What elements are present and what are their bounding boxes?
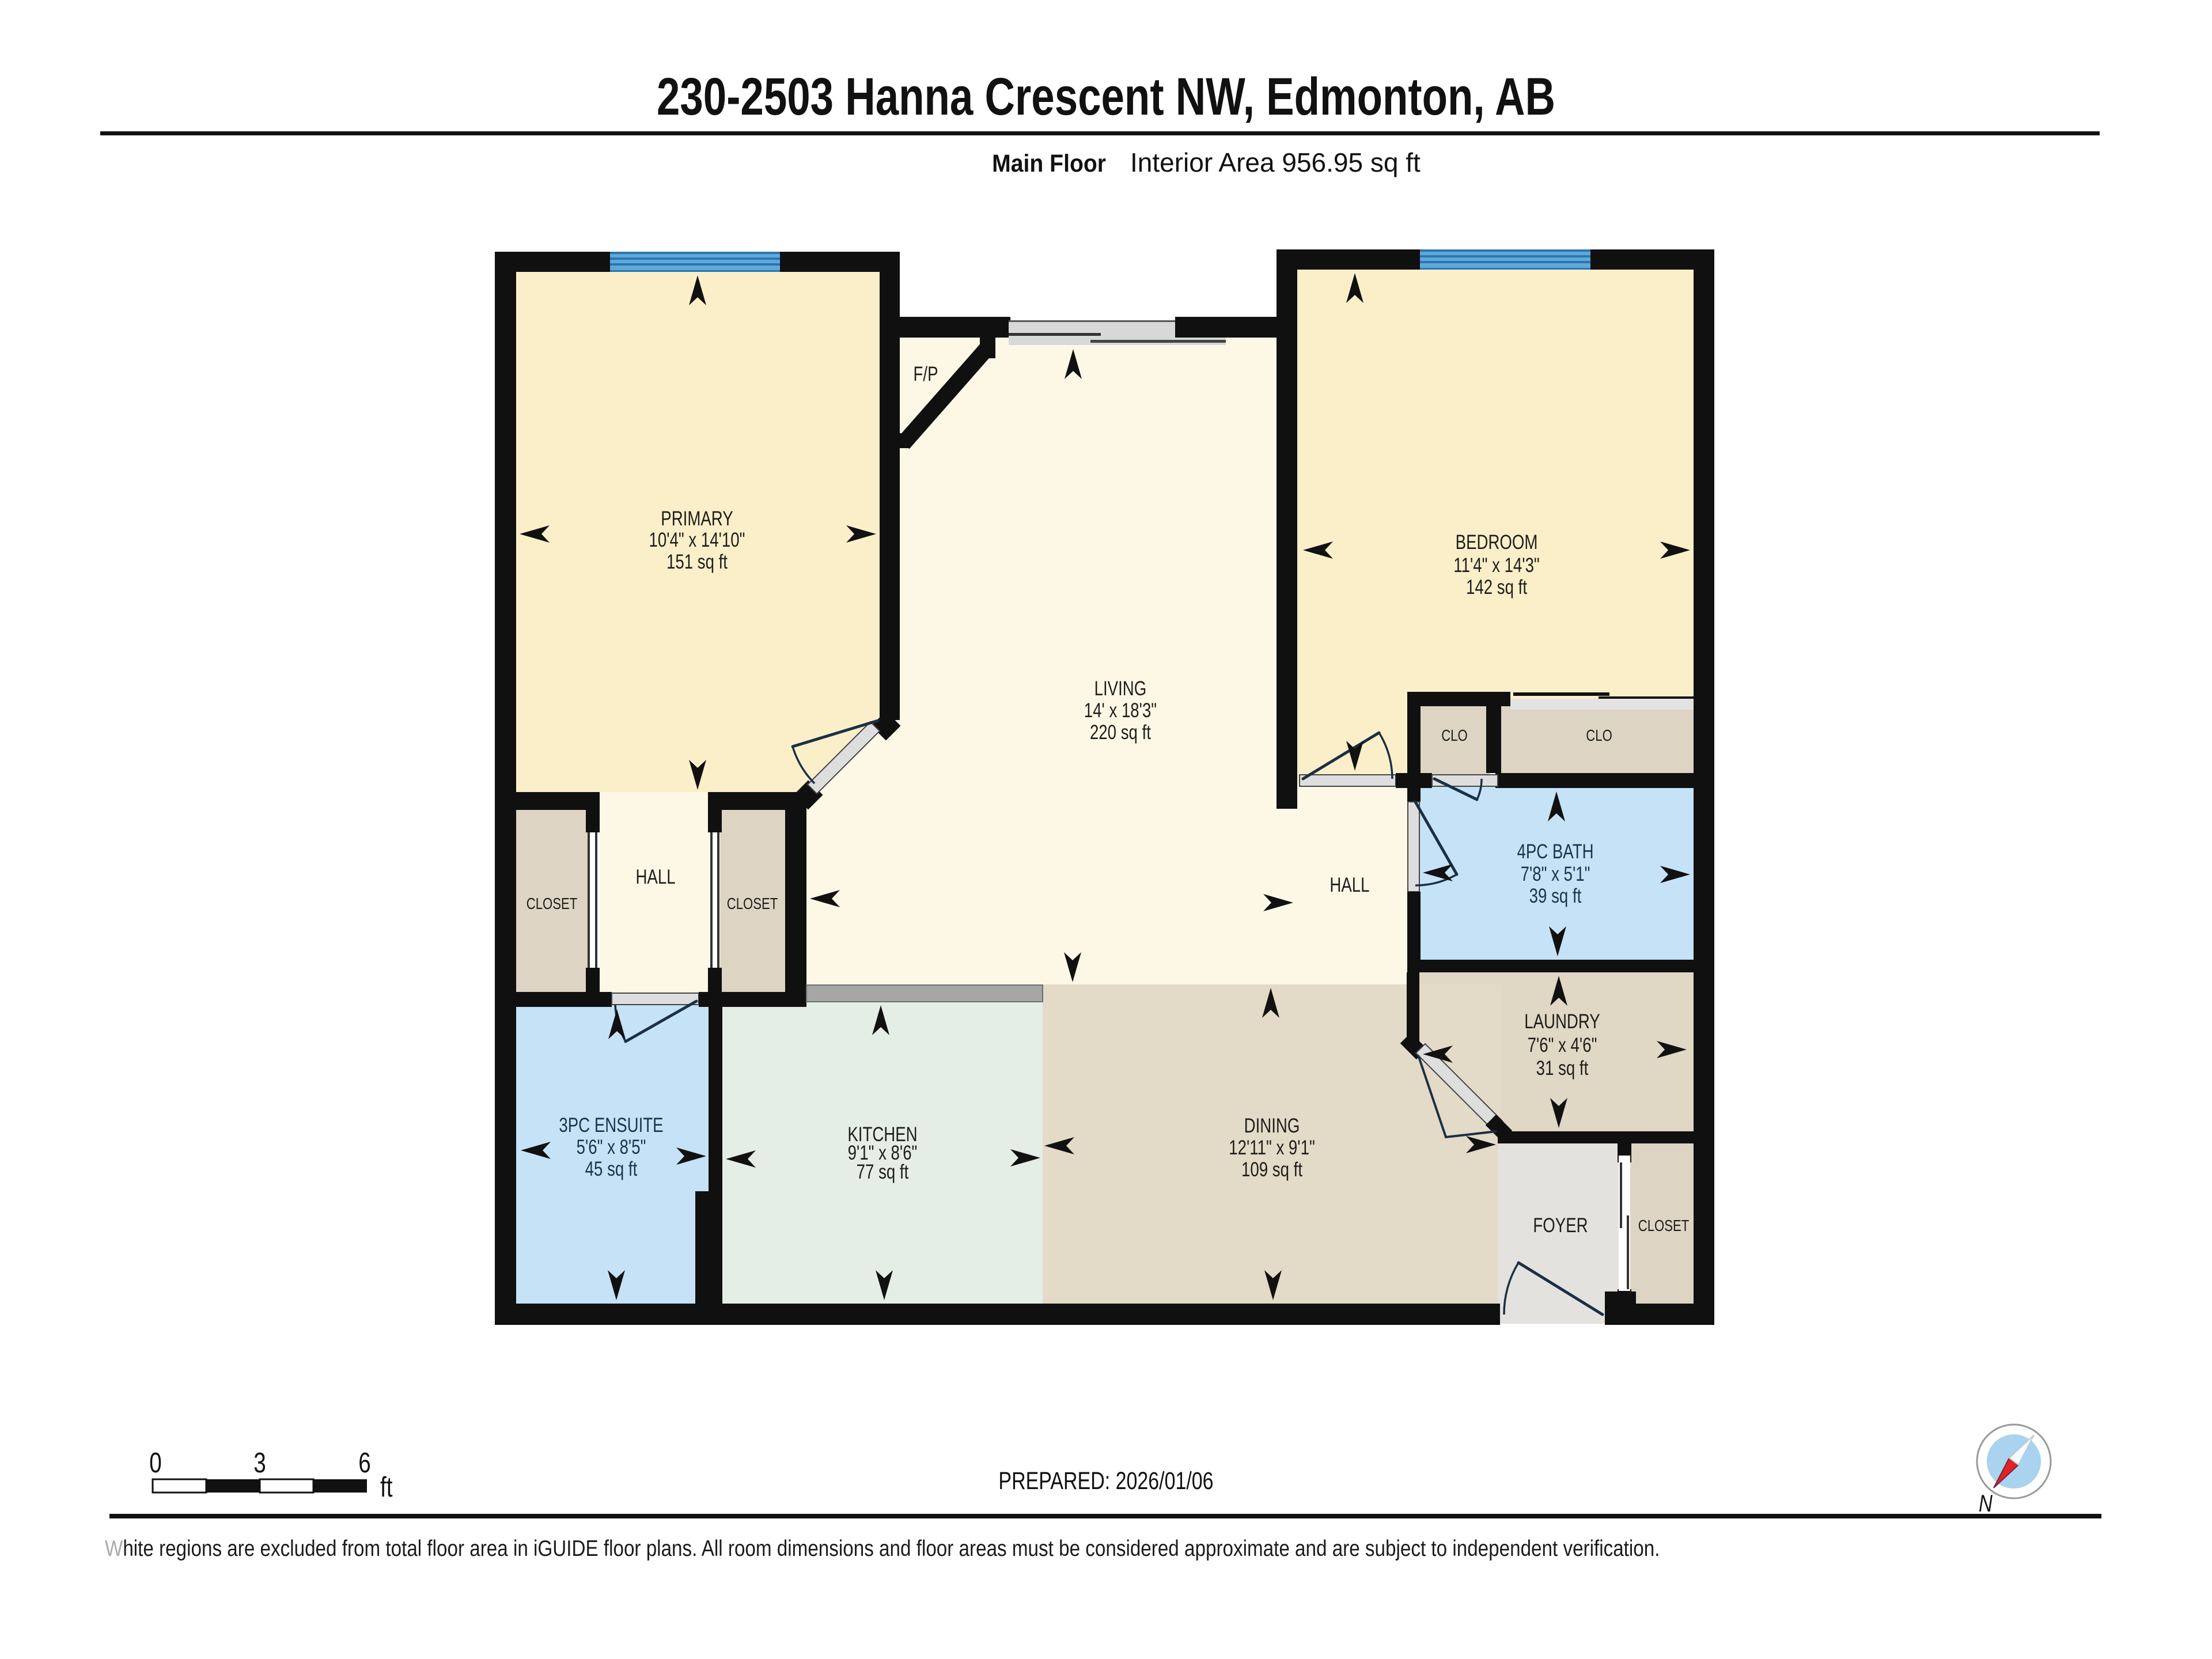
svg-text:230-2503 Hanna Crescent NW, Ed: 230-2503 Hanna Crescent NW, Edmonton, AB (657, 67, 1555, 126)
svg-text:151 sq ft: 151 sq ft (666, 550, 728, 573)
svg-text:CLO: CLO (1441, 727, 1467, 745)
svg-text:31 sq ft: 31 sq ft (1536, 1056, 1589, 1080)
svg-text:12'11" x 9'1": 12'11" x 9'1" (1229, 1136, 1315, 1159)
svg-text:109 sq ft: 109 sq ft (1241, 1158, 1302, 1181)
svg-text:CLOSET: CLOSET (727, 895, 778, 913)
svg-text:CLOSET: CLOSET (527, 895, 577, 913)
svg-text:10'4" x 14'10": 10'4" x 14'10" (649, 528, 745, 551)
svg-text:77 sq ft: 77 sq ft (857, 1160, 909, 1183)
svg-text:PRIMARY: PRIMARY (661, 507, 733, 530)
svg-text:7'8" x 5'1": 7'8" x 5'1" (1521, 862, 1590, 885)
svg-text:220 sq ft: 220 sq ft (1090, 721, 1151, 744)
svg-text:DINING: DINING (1244, 1114, 1300, 1137)
svg-text:45 sq ft: 45 sq ft (585, 1157, 638, 1180)
svg-text:PREPARED: 2026/01/06: PREPARED: 2026/01/06 (998, 1467, 1213, 1495)
svg-text:CLO: CLO (1586, 727, 1612, 745)
svg-text:LAUNDRY: LAUNDRY (1524, 1010, 1600, 1033)
svg-text:39 sq ft: 39 sq ft (1529, 884, 1582, 907)
svg-text:3PC ENSUITE: 3PC ENSUITE (559, 1113, 663, 1137)
svg-text:11'4" x 14'3": 11'4" x 14'3" (1453, 554, 1539, 577)
svg-text:6: 6 (358, 1448, 371, 1479)
svg-text:Interior Area 956.95 sq ft: Interior Area 956.95 sq ft (1130, 147, 1421, 177)
svg-text:White regions are excluded fro: White regions are excluded from total fl… (105, 1535, 1660, 1560)
svg-text:5'6" x 8'5": 5'6" x 8'5" (577, 1135, 646, 1158)
svg-text:F/P: F/P (914, 362, 938, 385)
svg-text:FOYER: FOYER (1533, 1214, 1588, 1237)
svg-text:4PC BATH: 4PC BATH (1517, 840, 1593, 863)
svg-text:3: 3 (253, 1448, 266, 1479)
svg-text:Main Floor: Main Floor (992, 149, 1106, 177)
svg-text:LIVING: LIVING (1094, 677, 1147, 700)
svg-text:HALL: HALL (1330, 873, 1369, 896)
svg-text:7'6" x 4'6": 7'6" x 4'6" (1528, 1033, 1597, 1056)
svg-text:HALL: HALL (635, 865, 675, 888)
svg-text:BEDROOM: BEDROOM (1456, 531, 1538, 554)
svg-text:0: 0 (149, 1448, 162, 1479)
svg-text:14' x 18'3": 14' x 18'3" (1084, 699, 1157, 722)
svg-text:CLOSET: CLOSET (1638, 1217, 1689, 1235)
svg-text:142 sq ft: 142 sq ft (1466, 575, 1527, 599)
svg-text:ft: ft (380, 1472, 393, 1503)
svg-text:N: N (1979, 1490, 1993, 1517)
